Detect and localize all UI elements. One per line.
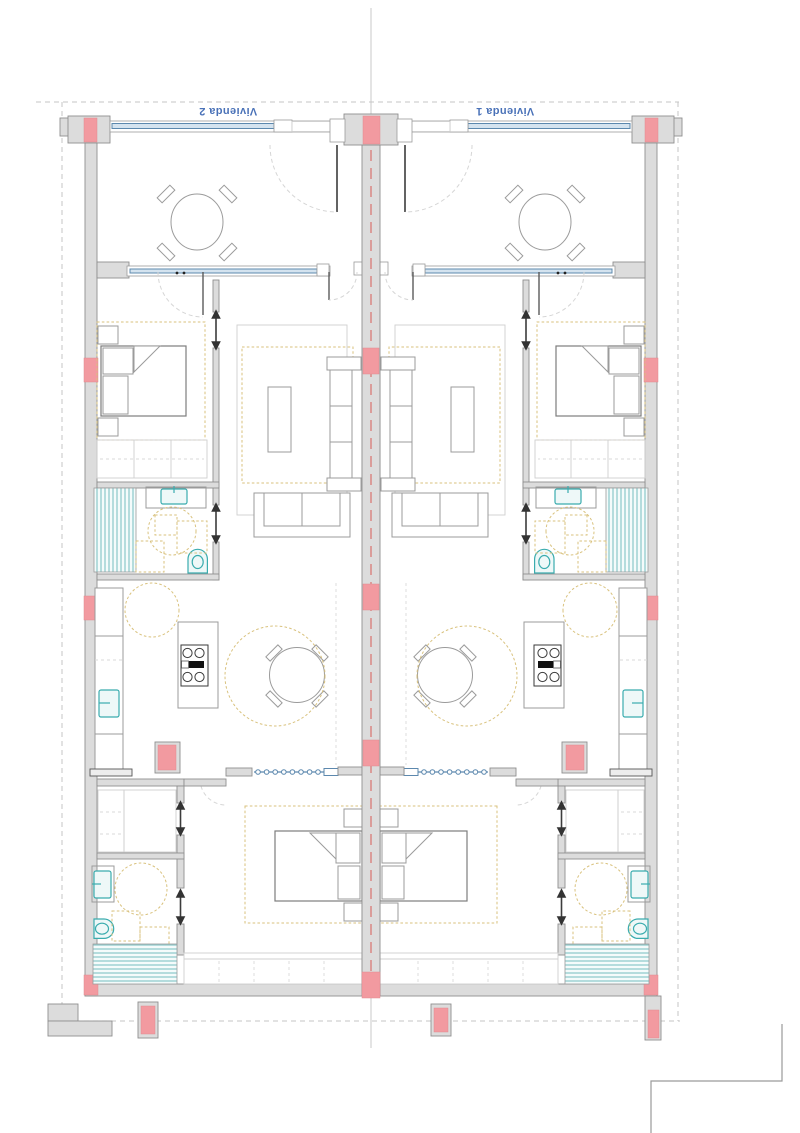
unit-label-vivienda-1: Vivienda 1 xyxy=(476,105,534,117)
party-wall xyxy=(362,145,380,998)
floor-plan-page: Vivienda 2 Vivienda 1 xyxy=(0,0,800,1133)
dwelling-vivienda-2 xyxy=(60,116,363,996)
dwelling-vivienda-1 xyxy=(379,116,682,996)
column-icon xyxy=(363,740,379,766)
column-icon xyxy=(362,972,380,998)
column-icon xyxy=(434,1008,448,1032)
column-icon xyxy=(363,116,380,144)
column-icon xyxy=(141,1006,155,1034)
column-icon xyxy=(648,1010,659,1038)
column-icon xyxy=(363,348,379,374)
exterior-piers xyxy=(48,996,661,1040)
column-icon xyxy=(363,584,379,610)
entrance-block xyxy=(330,114,412,145)
floor-plan-svg: Vivienda 2 Vivienda 1 xyxy=(0,0,800,1133)
plot-step-outline xyxy=(651,1024,782,1133)
unit-label-vivienda-2: Vivienda 2 xyxy=(199,105,257,117)
